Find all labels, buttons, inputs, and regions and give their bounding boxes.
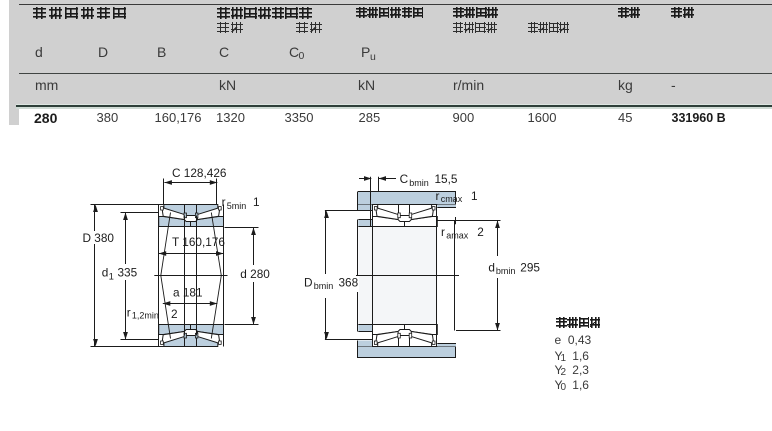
svg-text:335: 335 bbox=[118, 266, 138, 280]
svg-text:d: d bbox=[102, 266, 109, 280]
svg-text:r: r bbox=[436, 189, 440, 203]
svg-text:r: r bbox=[222, 195, 226, 209]
svg-text:1: 1 bbox=[109, 271, 114, 282]
svg-text:C: C bbox=[400, 172, 409, 186]
svg-text:bmin: bmin bbox=[409, 178, 429, 188]
svg-text:C 128,426: C 128,426 bbox=[172, 166, 227, 180]
svg-text:368: 368 bbox=[339, 275, 359, 289]
svg-text:15,5: 15,5 bbox=[435, 172, 458, 186]
svg-text:d 280: d 280 bbox=[240, 267, 270, 281]
svg-text:cmax: cmax bbox=[441, 194, 463, 204]
svg-text:1,2min: 1,2min bbox=[132, 311, 159, 321]
svg-text:2: 2 bbox=[477, 225, 484, 239]
svg-text:bmin: bmin bbox=[496, 266, 516, 276]
svg-text:1: 1 bbox=[471, 189, 478, 203]
svg-text:D 380: D 380 bbox=[83, 231, 115, 245]
svg-text:1: 1 bbox=[253, 195, 260, 209]
svg-text:295: 295 bbox=[520, 260, 540, 274]
svg-text:amax: amax bbox=[446, 231, 469, 241]
svg-text:D: D bbox=[304, 275, 313, 289]
svg-text:T 160,176: T 160,176 bbox=[172, 235, 225, 249]
svg-text:bmin: bmin bbox=[314, 281, 334, 291]
svg-text:d: d bbox=[488, 260, 495, 274]
svg-text:a 181: a 181 bbox=[173, 285, 203, 299]
svg-text:5min: 5min bbox=[227, 201, 247, 211]
svg-text:2: 2 bbox=[171, 307, 178, 321]
svg-text:r: r bbox=[441, 225, 445, 239]
svg-text:r: r bbox=[127, 305, 131, 319]
